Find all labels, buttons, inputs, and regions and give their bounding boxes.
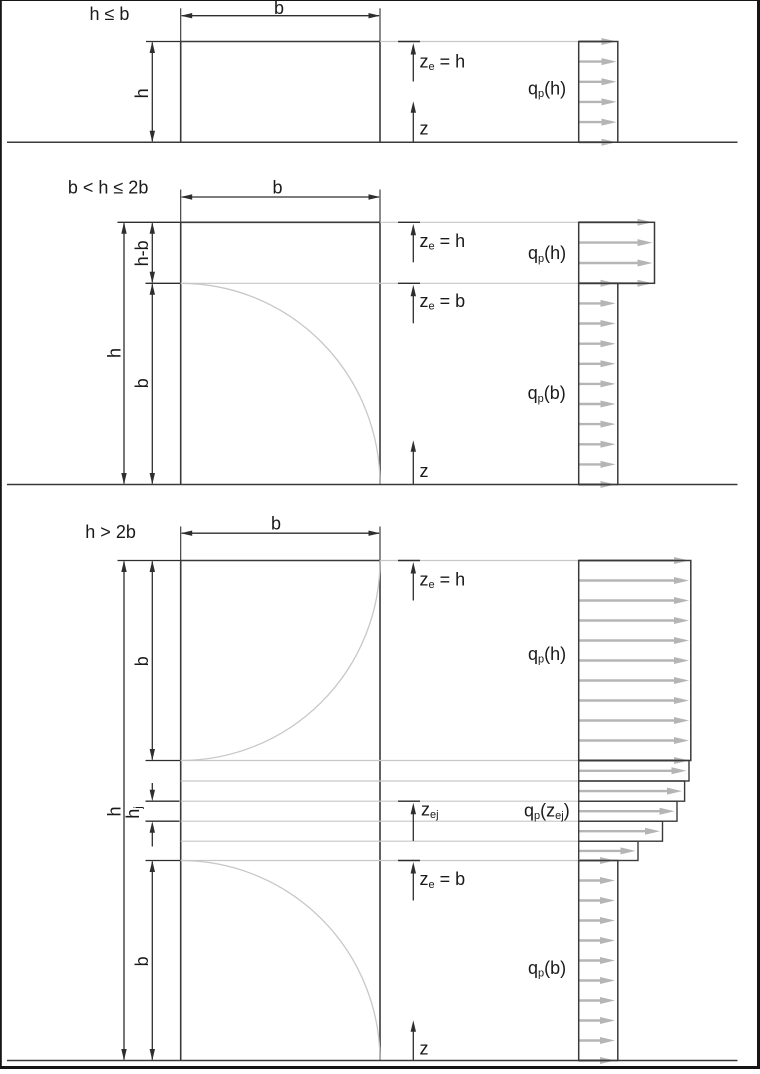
svg-text:b: b [271,514,281,534]
svg-text:h: h [105,806,125,816]
svg-text:ze = b: ze = b [420,869,466,891]
svg-text:qp(h): qp(h) [528,644,566,666]
svg-text:b < h ≤ 2b: b < h ≤ 2b [68,178,148,198]
svg-text:z: z [420,118,429,138]
svg-text:qp(b): qp(b) [528,383,566,405]
svg-text:b: b [132,378,152,388]
svg-text:ze = h: ze = h [420,231,466,253]
svg-text:b: b [274,0,284,18]
svg-text:ze = h: ze = h [420,569,466,591]
svg-text:z: z [420,1039,429,1059]
svg-text:qp(h): qp(h) [528,243,566,265]
svg-text:b: b [132,956,152,966]
svg-text:h: h [132,88,152,98]
svg-text:b: b [272,177,282,197]
svg-text:h > 2b: h > 2b [85,522,136,542]
svg-text:qp(h): qp(h) [528,79,566,101]
svg-text:ze = b: ze = b [420,291,466,313]
svg-text:h ≤ b: h ≤ b [90,4,130,24]
svg-text:h-b: h-b [132,240,152,266]
svg-text:b: b [132,656,152,666]
svg-text:qp(b): qp(b) [528,958,566,980]
svg-text:h: h [105,348,125,358]
svg-text:z: z [420,461,429,481]
svg-text:ze = h: ze = h [420,52,466,74]
svg-text:qp(zej): qp(zej) [524,800,570,822]
